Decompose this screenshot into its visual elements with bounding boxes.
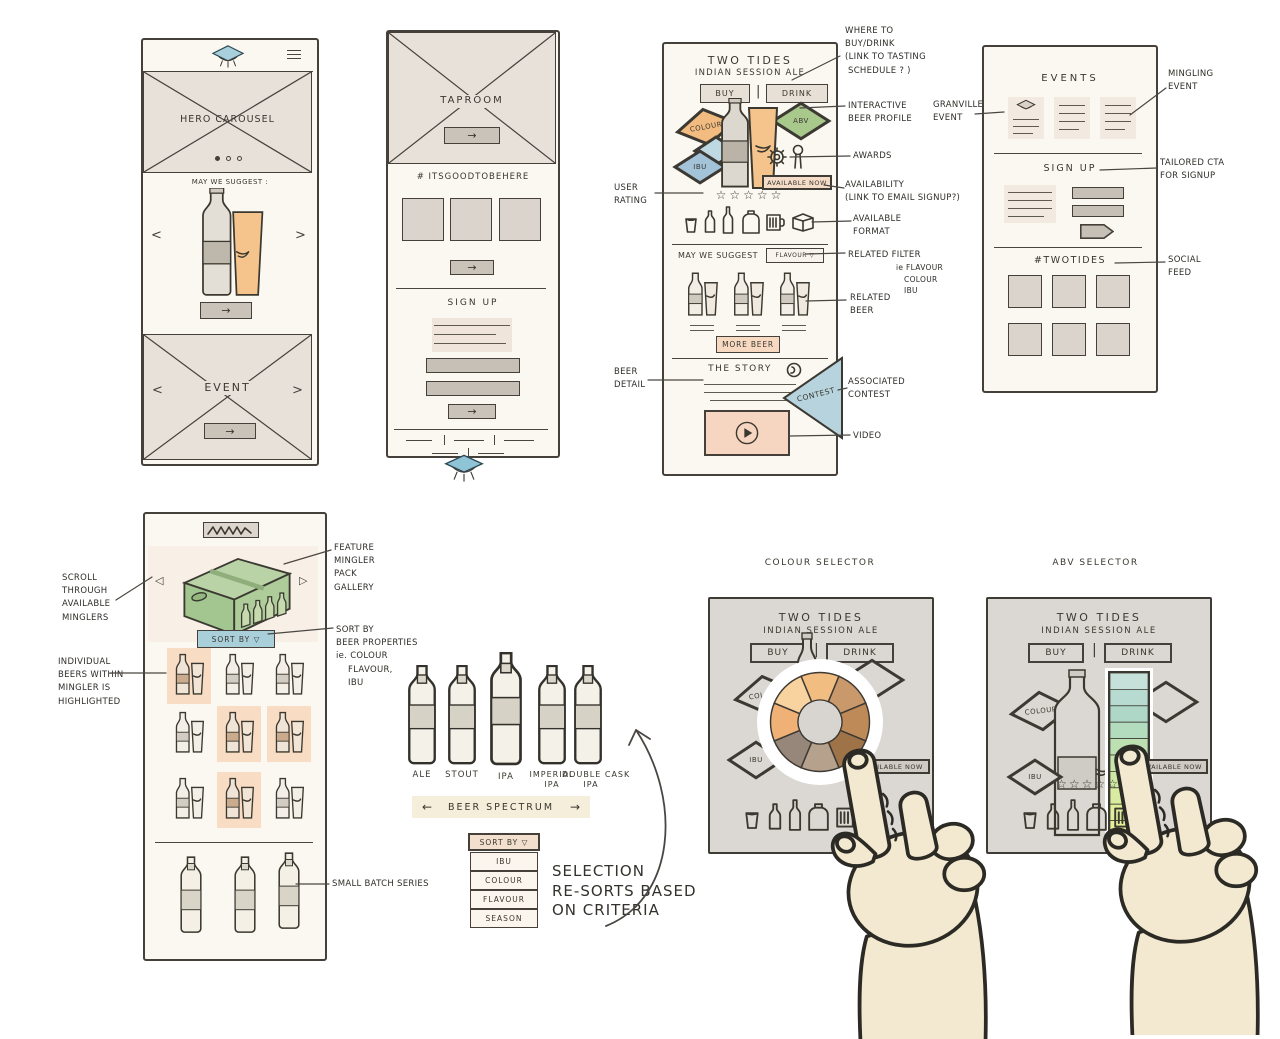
- signup-input-field[interactable]: [1072, 187, 1124, 199]
- drink-button[interactable]: DRINK: [1104, 643, 1172, 663]
- logo-scribble-placeholder: [203, 522, 259, 538]
- carousel-dot-active[interactable]: [215, 156, 220, 161]
- carousel-dot[interactable]: [226, 156, 231, 161]
- signup-submit-button[interactable]: [1080, 224, 1114, 239]
- abv-selector-caption: ABV SELECTOR: [1008, 558, 1183, 569]
- mingler-pack-illustration: [177, 550, 297, 638]
- button-divider: |: [756, 84, 760, 99]
- beer-spectrum-band: ← BEER SPECTRUM →: [412, 796, 590, 818]
- small-batch-bottle[interactable]: [275, 850, 303, 932]
- format-mug-icon[interactable]: [766, 212, 786, 232]
- buy-button[interactable]: BUY: [1028, 643, 1084, 663]
- hero-label: HERO CAROUSEL: [144, 114, 311, 126]
- phone-events: EVENTS SIGN UP #TWOTIDES: [982, 45, 1158, 393]
- event-card[interactable]: [1100, 97, 1136, 139]
- beer-title: TWO TIDES: [710, 611, 932, 625]
- beer-title: TWO TIDES: [988, 611, 1210, 625]
- social-post-thumb[interactable]: [1008, 323, 1042, 356]
- spectrum-left-arrow-icon[interactable]: ←: [422, 800, 432, 814]
- annotation-awards: AWARDS: [853, 150, 892, 163]
- gallery-cta-button[interactable]: →: [450, 260, 494, 275]
- phone-beer-detail: TWO TIDES INDIAN SESSION ALE BUY | DRINK…: [662, 42, 838, 476]
- signup-input-field[interactable]: [426, 381, 520, 396]
- sort-by-button[interactable]: SORT BY ▽: [197, 630, 275, 648]
- section-divider: [155, 842, 313, 843]
- suggest-heading: MAY WE SUGGEST: [678, 251, 768, 261]
- related-beer-item[interactable]: [776, 270, 812, 322]
- beer-subtitle: INDIAN SESSION ALE: [664, 68, 836, 79]
- more-beer-button[interactable]: MORE BEER: [716, 336, 780, 353]
- mingler-beer-highlighted[interactable]: [267, 706, 311, 762]
- social-hashtag-heading: #TWOTIDES: [984, 255, 1156, 267]
- annotation-associated-contest: ASSOCIATED CONTEST: [848, 376, 905, 402]
- footer-divider: [394, 429, 548, 430]
- signup-heading: SIGN UP: [984, 163, 1156, 175]
- gallery-thumb[interactable]: [499, 198, 541, 241]
- mingler-beer[interactable]: [217, 648, 261, 704]
- spectrum-right-arrow-icon[interactable]: →: [570, 800, 580, 814]
- sort-menu-item-flavour[interactable]: FLAVOUR: [470, 890, 538, 909]
- spectrum-bottle-stout: [442, 665, 482, 765]
- annotation-scroll-minglers: SCROLL THROUGH AVAILABLE MINGLERS: [62, 572, 110, 625]
- format-bottle-icon[interactable]: [704, 210, 716, 234]
- annotation-tailored-cta: TAILORED CTA FOR SIGNUP: [1160, 157, 1224, 183]
- drink-button[interactable]: DRINK: [766, 84, 828, 103]
- annotation-individual-beers: INDIVIDUAL BEERS WITHIN MINGLER IS HIGHL…: [58, 656, 124, 709]
- related-beer-item[interactable]: [730, 270, 766, 322]
- social-post-thumb[interactable]: [1096, 323, 1130, 356]
- prev-chevron-icon[interactable]: <: [152, 383, 163, 398]
- brand-logo-icon: [1016, 99, 1036, 113]
- beer-title: TWO TIDES: [664, 54, 836, 68]
- spectrum-bottle-imperial-ipa: [532, 665, 572, 765]
- spectrum-bottle-ipa: [484, 652, 528, 766]
- gallery-thumb[interactable]: [450, 198, 492, 241]
- event-card[interactable]: [1008, 97, 1044, 139]
- spectrum-label: ALE: [402, 770, 442, 781]
- related-filter-dropdown[interactable]: FLAVOUR ▽: [766, 248, 824, 263]
- annotation-social-feed: SOCIAL FEED: [1168, 254, 1201, 280]
- spectrum-label: IPA: [486, 772, 526, 783]
- annotation-small-batch: SMALL BATCH SERIES: [332, 878, 429, 891]
- award-gear-icon: [766, 146, 788, 168]
- social-post-thumb[interactable]: [1052, 323, 1086, 356]
- format-growler-icon[interactable]: [742, 210, 760, 234]
- taproom-label: TAPROOM: [389, 95, 555, 108]
- section-divider: [994, 247, 1142, 248]
- mingler-beer[interactable]: [167, 706, 211, 762]
- spectrum-label: STOUT: [440, 770, 484, 781]
- sort-menu-header[interactable]: SORT BY ▽: [468, 833, 540, 851]
- abv-diamond[interactable]: ABV: [772, 102, 830, 140]
- annotation-feature-pack: FEATURE MINGLER PACK GALLERY: [334, 542, 375, 595]
- story-heading: THE STORY: [690, 364, 790, 375]
- beer-subtitle: INDIAN SESSION ALE: [710, 626, 932, 637]
- format-cup-icon[interactable]: [744, 809, 760, 831]
- brand-logo-icon: [443, 452, 485, 486]
- annotation-related-filter-sub: ie FLAVOUR COLOUR IBU: [896, 262, 943, 297]
- format-case-icon[interactable]: [792, 212, 814, 232]
- annotation-user-rating: USER RATING: [614, 182, 647, 208]
- spectrum-band-label: BEER SPECTRUM: [448, 802, 554, 813]
- beer-subtitle: INDIAN SESSION ALE: [988, 626, 1210, 637]
- mingler-beer-highlighted[interactable]: [217, 706, 261, 762]
- mingler-beer[interactable]: [267, 648, 311, 704]
- mingler-beer[interactable]: [267, 772, 311, 828]
- social-post-thumb[interactable]: [1008, 275, 1042, 308]
- award-ribbon-icon: [792, 144, 804, 170]
- annotation-mingling-event: MINGLING EVENT: [1168, 68, 1213, 94]
- hashtag-heading: # ITSGOODTOBEHERE: [388, 172, 558, 183]
- format-tall-bottle-icon[interactable]: [722, 206, 734, 234]
- next-chevron-icon[interactable]: >: [295, 228, 306, 243]
- annotation-where-to-buy: WHERE TO BUY/DRINK (LINK TO TASTING SCHE…: [845, 25, 926, 78]
- format-bottle-icon[interactable]: [768, 803, 782, 831]
- signup-copy-placeholder: [1004, 185, 1056, 223]
- annotation-sort-properties: SORT BY BEER PROPERTIES ie. COLOUR FLAVO…: [336, 624, 418, 690]
- button-divider: |: [1092, 642, 1097, 658]
- signup-input-field[interactable]: [426, 358, 520, 373]
- format-cup-icon[interactable]: [1022, 809, 1038, 831]
- annotation-video: VIDEO: [853, 430, 881, 443]
- phone-mingler: ◁ ▷ SORT BY ▽: [143, 512, 327, 961]
- event-card[interactable]: [1054, 97, 1090, 139]
- signup-input-field[interactable]: [1072, 205, 1124, 217]
- mingler-beer[interactable]: [167, 772, 211, 828]
- taproom-hero[interactable]: TAPROOM →: [388, 32, 556, 164]
- gallery-next-icon[interactable]: ▷: [299, 574, 307, 587]
- next-chevron-icon[interactable]: >: [292, 383, 303, 398]
- section-divider: [672, 244, 828, 245]
- beer-bottle-illustration: [716, 98, 754, 190]
- format-bottle-icon[interactable]: [1046, 803, 1060, 831]
- signup-heading: SIGN UP: [388, 298, 558, 309]
- event-banner[interactable]: EVENT < > →: [143, 334, 312, 460]
- gallery-prev-icon[interactable]: ◁: [155, 574, 163, 587]
- social-post-thumb[interactable]: [1096, 275, 1130, 308]
- pointing-hand-illustration: [1060, 735, 1260, 1035]
- video-player[interactable]: [704, 410, 790, 456]
- related-beer-item[interactable]: [684, 270, 720, 322]
- play-icon[interactable]: [732, 418, 762, 448]
- suggested-beer-illustration: [189, 188, 279, 300]
- event-label: EVENT: [144, 381, 311, 395]
- suggest-heading: MAY WE SUGGEST :: [143, 178, 317, 187]
- event-cta-button[interactable]: →: [204, 423, 256, 439]
- sort-menu-item-colour[interactable]: COLOUR: [470, 871, 538, 890]
- carousel-dot[interactable]: [237, 156, 242, 161]
- annotation-granville-event: GRANVILLE EVENT: [933, 99, 983, 125]
- annotation-available-format: AVAILABLE FORMAT: [853, 213, 901, 239]
- prev-chevron-icon[interactable]: <: [151, 228, 162, 243]
- annotation-availability: AVAILABILITY (LINK TO EMAIL SIGNUP?): [845, 179, 960, 205]
- annotation-related-filter: RELATED FILTER: [848, 249, 921, 262]
- gallery-thumb[interactable]: [402, 198, 444, 241]
- signup-copy-placeholder: [432, 318, 512, 352]
- brand-logo-icon[interactable]: [209, 44, 247, 69]
- pointing-hand-illustration: [788, 739, 988, 1039]
- suggest-cta-button[interactable]: →: [200, 302, 252, 319]
- section-divider: [994, 153, 1142, 154]
- colour-selector-caption: COLOUR SELECTOR: [730, 558, 910, 569]
- selection-note: SELECTION RE-SORTS BASED ON CRITERIA: [552, 862, 697, 921]
- annotation-related-beer: RELATED BEER: [850, 292, 891, 318]
- sort-menu-item-season[interactable]: SEASON: [470, 909, 538, 928]
- user-rating-stars[interactable]: ☆☆☆☆☆: [690, 188, 810, 203]
- spectrum-label: DOUBLE CASK IPA: [562, 770, 620, 790]
- small-batch-bottle[interactable]: [231, 856, 259, 934]
- phone-home: HERO CAROUSEL MAY WE SUGGEST : < > → EVE…: [141, 38, 319, 466]
- spectrum-bottle-double-cask: [568, 665, 608, 765]
- mingler-beer-highlighted[interactable]: [167, 648, 211, 704]
- signup-submit-button[interactable]: →: [448, 404, 496, 419]
- phone-taproom: TAPROOM → # ITSGOODTOBEHERE → SIGN UP →: [386, 30, 560, 458]
- social-post-thumb[interactable]: [1052, 275, 1086, 308]
- section-divider: [396, 288, 546, 289]
- sort-menu-item-ibu[interactable]: IBU: [470, 852, 538, 871]
- annotation-beer-detail: BEER DETAIL: [614, 366, 645, 392]
- small-batch-bottle[interactable]: [177, 856, 205, 934]
- events-heading: EVENTS: [984, 73, 1156, 86]
- format-cup-icon[interactable]: [684, 216, 698, 234]
- taproom-cta-button[interactable]: →: [444, 127, 500, 144]
- annotation-interactive-profile: INTERACTIVE BEER PROFILE: [848, 100, 912, 126]
- mingler-beer-highlighted[interactable]: [217, 772, 261, 828]
